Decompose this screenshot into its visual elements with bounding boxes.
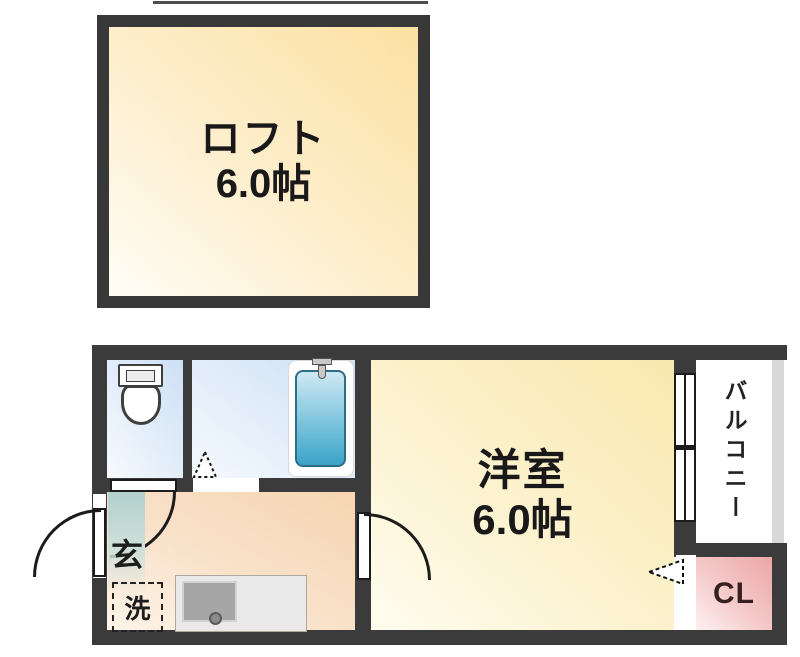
faucet-stem <box>318 365 326 379</box>
bath-entry-opening <box>193 478 259 492</box>
bathtub-icon <box>295 370 346 467</box>
entrance-door-swing-arc-icon <box>33 509 101 577</box>
sliding-window-icon <box>674 373 696 522</box>
wall-above-window <box>674 360 696 373</box>
floor-plan-canvas: ロフト 6.0帖 洋室 6.0帖 バルコニー CL <box>0 0 800 657</box>
upper-edge-line <box>153 1 428 4</box>
loft-room-size: 6.0帖 <box>216 162 312 207</box>
wall-toilet-partition <box>183 360 192 478</box>
toilet-tank-lid <box>126 370 155 382</box>
balcony: バルコニー <box>696 360 784 543</box>
folding-door-triangle-icon <box>192 450 218 479</box>
entrance-label: 玄 <box>110 530 144 576</box>
balcony-railing <box>772 360 784 543</box>
window-overlap-mark <box>676 445 694 450</box>
western-style-room: 洋室 6.0帖 <box>371 360 674 630</box>
loft-room: ロフト 6.0帖 <box>97 15 430 308</box>
wall-right <box>772 543 787 645</box>
wall-bottom <box>92 630 787 645</box>
wall-top <box>92 345 787 360</box>
wall-center-partition <box>355 360 371 630</box>
kitchen-counter <box>175 575 307 632</box>
loft-room-label: ロフト <box>201 117 327 162</box>
balcony-label: バルコニー <box>717 379 751 524</box>
main-room-size: 6.0帖 <box>472 496 572 543</box>
sink-faucet-knob <box>209 612 222 625</box>
toilet-icon <box>118 364 163 387</box>
closet: CL <box>696 557 772 630</box>
toilet-door-leaf <box>110 479 177 492</box>
faucet-icon <box>312 358 332 365</box>
kitchen-sink-icon <box>182 581 237 622</box>
laundry-machine-space: 洗 <box>112 582 163 632</box>
main-room-label: 洋室 <box>478 447 568 495</box>
closet-label: CL <box>713 577 755 611</box>
closet-opening-arrow-icon <box>646 557 686 587</box>
laundry-label: 洗 <box>124 589 150 626</box>
